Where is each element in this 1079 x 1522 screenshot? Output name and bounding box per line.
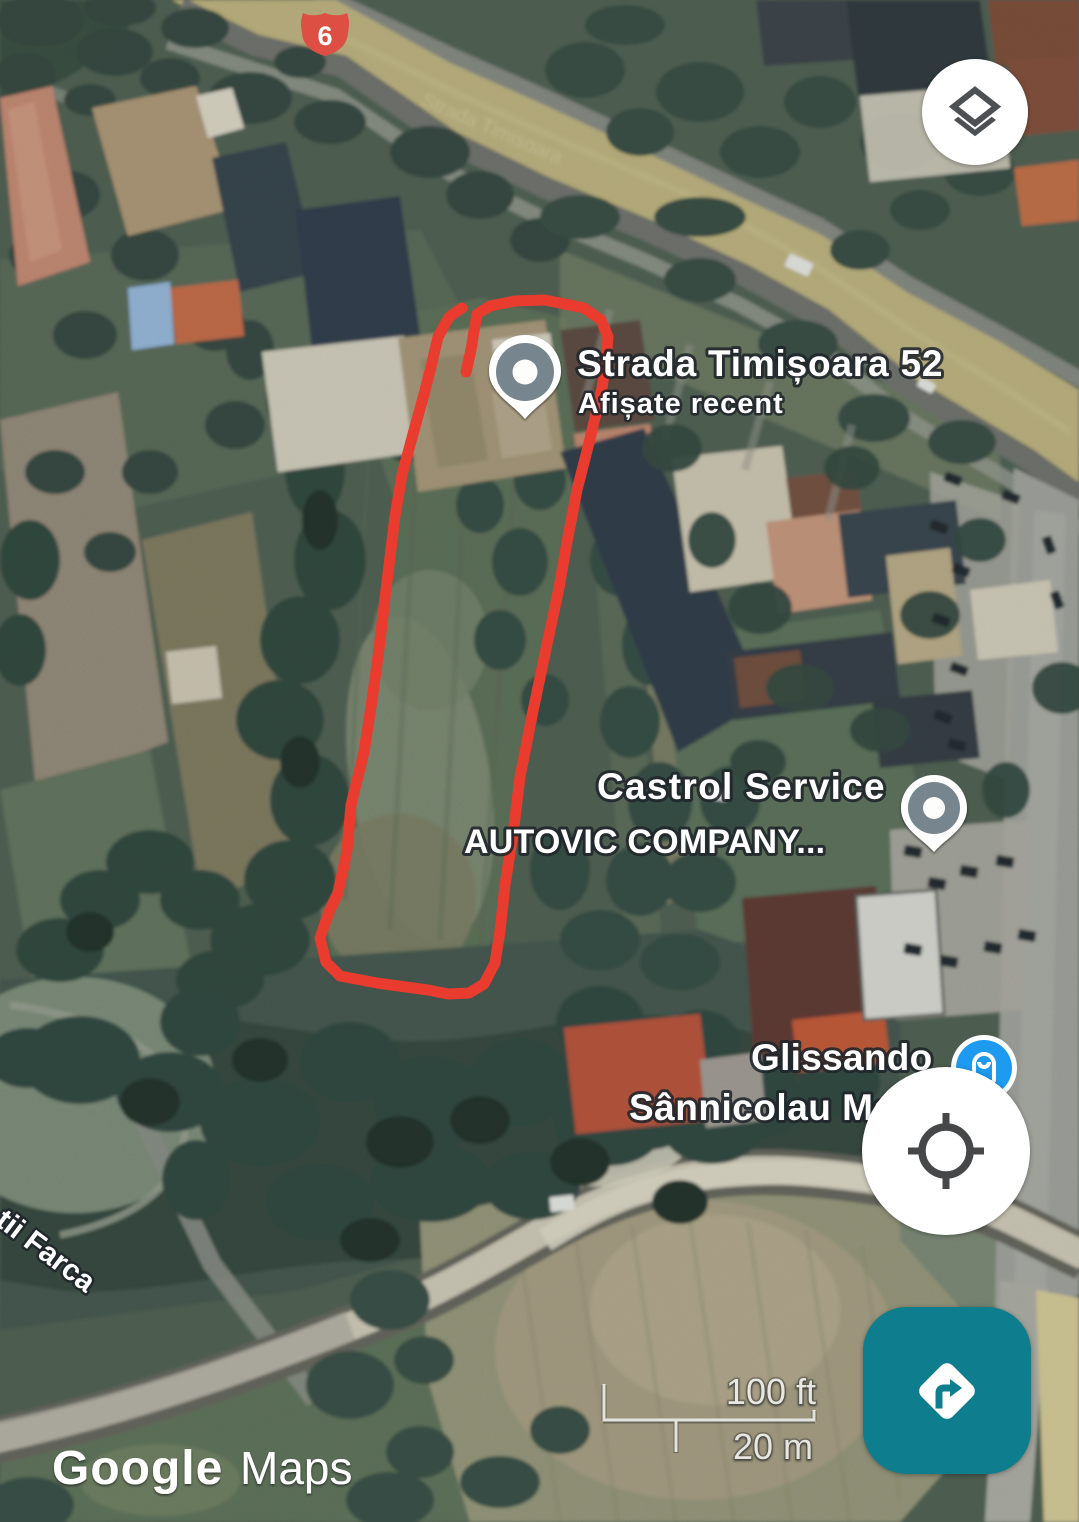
svg-text:Glissando: Glissando bbox=[751, 1037, 933, 1078]
svg-text:100 ft: 100 ft bbox=[726, 1371, 816, 1412]
svg-text:6: 6 bbox=[317, 21, 332, 51]
svg-text:AUTOVIC COMPANY...: AUTOVIC COMPANY... bbox=[464, 823, 825, 861]
svg-text:20 m: 20 m bbox=[733, 1426, 813, 1467]
svg-text:Google: Google bbox=[52, 1442, 223, 1495]
svg-text:Maps: Maps bbox=[240, 1442, 352, 1494]
svg-text:Afișate recent: Afișate recent bbox=[578, 388, 784, 420]
svg-text:Castrol Service: Castrol Service bbox=[597, 766, 886, 807]
svg-text:Strada Timișoara 52: Strada Timișoara 52 bbox=[577, 343, 943, 384]
